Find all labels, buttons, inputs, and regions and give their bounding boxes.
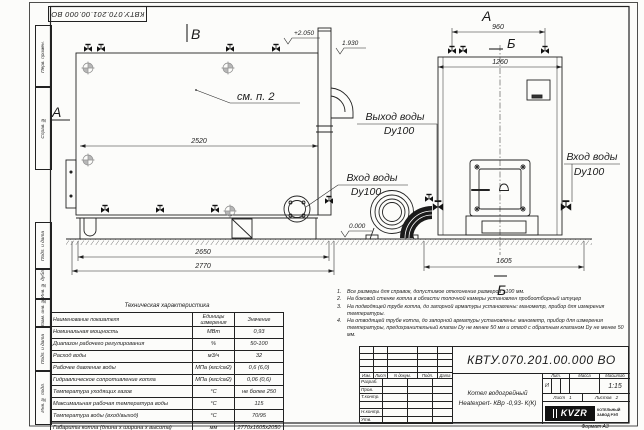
note-item: 3.На подводящей трубе котла, до запорной… [334,304,626,318]
section-v: В [191,26,200,42]
valve-icon [156,206,164,213]
elevation-flag [336,48,366,54]
table-row: Температура воды (вход/выход)°С70/95 [51,409,283,421]
doc-code-stamp: КВТУ.070.201.00.000 ВО [48,6,147,22]
door-lock-icon [500,184,509,191]
param-unit: мм [193,422,235,430]
flue-elbow [331,88,353,118]
param-name: Номинальная мощность [51,327,193,338]
sheets-label: Листов [595,395,612,400]
valve-icon [448,47,456,54]
scale-value: 1:15 [600,379,630,394]
param-value: 70/95 [235,410,283,421]
doc-code-stamp-text: КВТУ.070.201.00.000 ВО [51,10,144,19]
note-number: 3. [334,304,347,318]
note-text: На боковой стенке котла в области топочн… [347,296,626,303]
valve-icon [272,45,280,52]
tech-table: Наименование показателя Единицы измерени… [50,312,284,430]
water-inlet-left-dn: Dy100 [351,186,382,198]
product-name: Котел водогрейный Heatexpert- КВр -0,93-… [453,373,543,424]
tech-table-title: Техническая характеристика [50,303,284,309]
table-row: Диапазон рабочего регулирования%50-100 [51,338,283,350]
param-unit: °С [193,410,235,421]
note-number: 4. [334,318,347,339]
param-value: 2770х1605х2050 [235,422,283,430]
signature-rows: Разраб. Пров. Т.контр. Н.контр. Утв. [360,379,453,424]
crosshair-marker [222,62,235,75]
margin-label: Подп. и дата [41,231,46,261]
valve-icon [459,47,467,54]
margin-label: Справ. № [41,117,46,139]
valve-icon [211,206,219,213]
tech-table-header: Наименование показателя Единицы измерени… [51,313,283,326]
dim-2650: 2650 [194,249,211,256]
table-row: Габариты котла (длина х ширина х высота)… [51,421,283,430]
param-name: Диапазон рабочего регулирования [51,339,193,350]
title-block-right: Лит. Масса Масштаб И 1:15 Лист 1 Листов … [543,373,630,424]
sheets-value: 2 [616,395,619,400]
doc-number: КВТУ.070.201.00.000 ВО [453,347,630,374]
param-name: Температура воды (вход/выход) [51,410,193,421]
dim-2770: 2770 [194,263,211,270]
sheet-cell: Лист 1 [543,394,583,402]
margin-box-perv-primen: Перв. примен. [35,25,52,88]
margin-box-sprav: Справ. № [35,86,52,170]
note-number: 1. [334,289,347,296]
tech-col-header: Наименование показателя [51,313,193,326]
valve-icon [84,45,92,52]
drawing-sheet: 2520 2650 2770 960 1260 1605 В А А Б Б с… [0,0,644,430]
param-name: Максимальная рабочая температура воды [51,398,193,409]
tech-col-header: Единицы измерения [193,313,235,326]
product-name-line2: Heatexpert- КВр -0,93- К(К) [459,399,537,408]
boiler-front-view [438,45,562,255]
table-row: Рабочее давление водыМПа (кгс/см2)0,6 (6… [51,362,283,374]
product-name-line1: Котел водогрейный [468,389,528,398]
note-item: 1.Все размеры для справок, допустимое от… [334,289,626,296]
param-unit: м3/ч [193,351,235,362]
margin-label: Взам. инв. № [41,298,46,327]
margin-label: Перв. примен. [41,41,46,73]
kvzr-logo-stripes [553,409,559,418]
margin-label: Инв. № дубл. [41,269,46,298]
title-block: Изм. Лист N докум. Подп. Дата Разраб. Пр… [359,346,629,423]
sheet-value: 1 [569,395,572,400]
logo-caption-line2: ЗАВОД РЭП [597,413,620,418]
param-value: 0,06 (0,6) [235,375,283,386]
crosshair-marker [82,62,95,75]
note-text: Все размеры для справок, допустимое откл… [347,289,626,296]
water-outlet-dn: Dy100 [384,125,415,137]
param-name: Рабочее давление воды [51,363,193,374]
company-logo-area: KVZR КОТЕЛЬНЫЙ ЗАВОД РЭП [543,402,630,424]
revision-grid [360,347,453,373]
param-value: 115 [235,398,283,409]
sheets-cell: Листов 2 [583,394,630,402]
margin-label: Подп. и дата [41,334,46,364]
table-row: Номинальная мощностьМВт0,93 [51,326,283,338]
elevation-flag [341,231,372,237]
param-value: не более 250 [235,386,283,397]
param-unit: МВт [193,327,235,338]
param-unit: °С [193,398,235,409]
dim-2520: 2520 [190,138,207,145]
tech-col-header: Значение [235,313,283,326]
param-unit: % [193,339,235,350]
role-label: Утв. [360,417,383,425]
water-inlet-right-dn: Dy100 [574,166,605,178]
leader-dot [195,89,197,91]
param-value: 32 [235,351,283,362]
role-label: Разраб. [360,379,383,387]
table-row: Расход водым3/ч32 [51,350,283,362]
param-name: Температура уходящих газов [51,386,193,397]
param-value: 0,93 [235,327,283,338]
ash-drawer [466,216,538,235]
kvzr-logo-text: KVZR [561,408,588,418]
param-unit: МПа (кгс/см2) [193,363,235,374]
logo-caption: КОТЕЛЬНЫЙ ЗАВОД РЭП [597,408,620,417]
param-value: 50-100 [235,339,283,350]
boiler-side-view [66,28,353,239]
water-outlet-label: Выход воды [365,111,424,123]
crosshair-marker [82,154,95,167]
water-inlet-right-label: Вход воды [567,151,618,163]
notes-list: 1.Все размеры для справок, допустимое от… [334,289,626,340]
dim-1260: 1260 [492,59,508,66]
note-item: 2.На боковой стенке котла в области топо… [334,296,626,303]
role-label [360,402,383,410]
margin-label: Инв. № подл. [41,383,46,413]
format-note: Формат А3 [560,424,630,430]
note-item: 4.На отводящей трубе котла, до запорной … [334,318,626,339]
note-text: На подводящей трубе котла, до запорной а… [347,304,626,318]
dim-1605: 1605 [496,258,512,265]
valve-icon [541,47,549,54]
table-row: Температура уходящих газов°Сне более 250 [51,385,283,397]
mass-value [570,379,600,394]
elevation-zero: 0.000 [349,223,366,230]
section-b-top: Б [507,36,516,51]
margin-box-inv-dubl: Инв. № дубл. [35,268,52,300]
param-name: Гидравлическое сопротивление котла [51,375,193,386]
table-row: Гидравлическое сопротивление котлаМПа (к… [51,374,283,386]
elevation-top: +2.050 [294,30,314,37]
section-a-left: А [51,104,61,120]
param-unit: °С [193,386,235,397]
dim-960: 960 [492,24,504,31]
param-name: Расход воды [51,351,193,362]
valve-icon [101,206,109,213]
lit-value: И [543,379,552,394]
valve-icon [325,197,333,204]
note-text: На отводящей трубе котла, до запорной ар… [347,318,626,339]
role-label: Пров. [360,387,383,395]
elevation-flue: 1.930 [342,40,359,47]
role-label: Н.контр. [360,409,383,417]
see-item-label: см. п. 2 [237,91,274,103]
valve-icon [226,45,234,52]
crosshair-marker [224,205,237,218]
kvzr-logo: KVZR [545,406,595,421]
margin-box-podp-data-1: Подп. и дата [35,222,52,270]
elevation-flag [284,38,320,44]
water-inlet-left-label: Вход воды [347,172,398,184]
valve-icon [425,195,433,202]
param-value: 0,6 (6,0) [235,363,283,374]
note-number: 2. [334,296,347,303]
sheet-label: Лист [553,395,565,400]
valve-icon [97,45,105,52]
param-unit: МПа (кгс/см2) [193,375,235,386]
table-row: Максимальная рабочая температура воды°С1… [51,397,283,409]
section-a-top: А [481,8,491,24]
role-label: Т.контр. [360,394,383,402]
param-name: Габариты котла (длина х ширина х высота) [51,422,193,430]
